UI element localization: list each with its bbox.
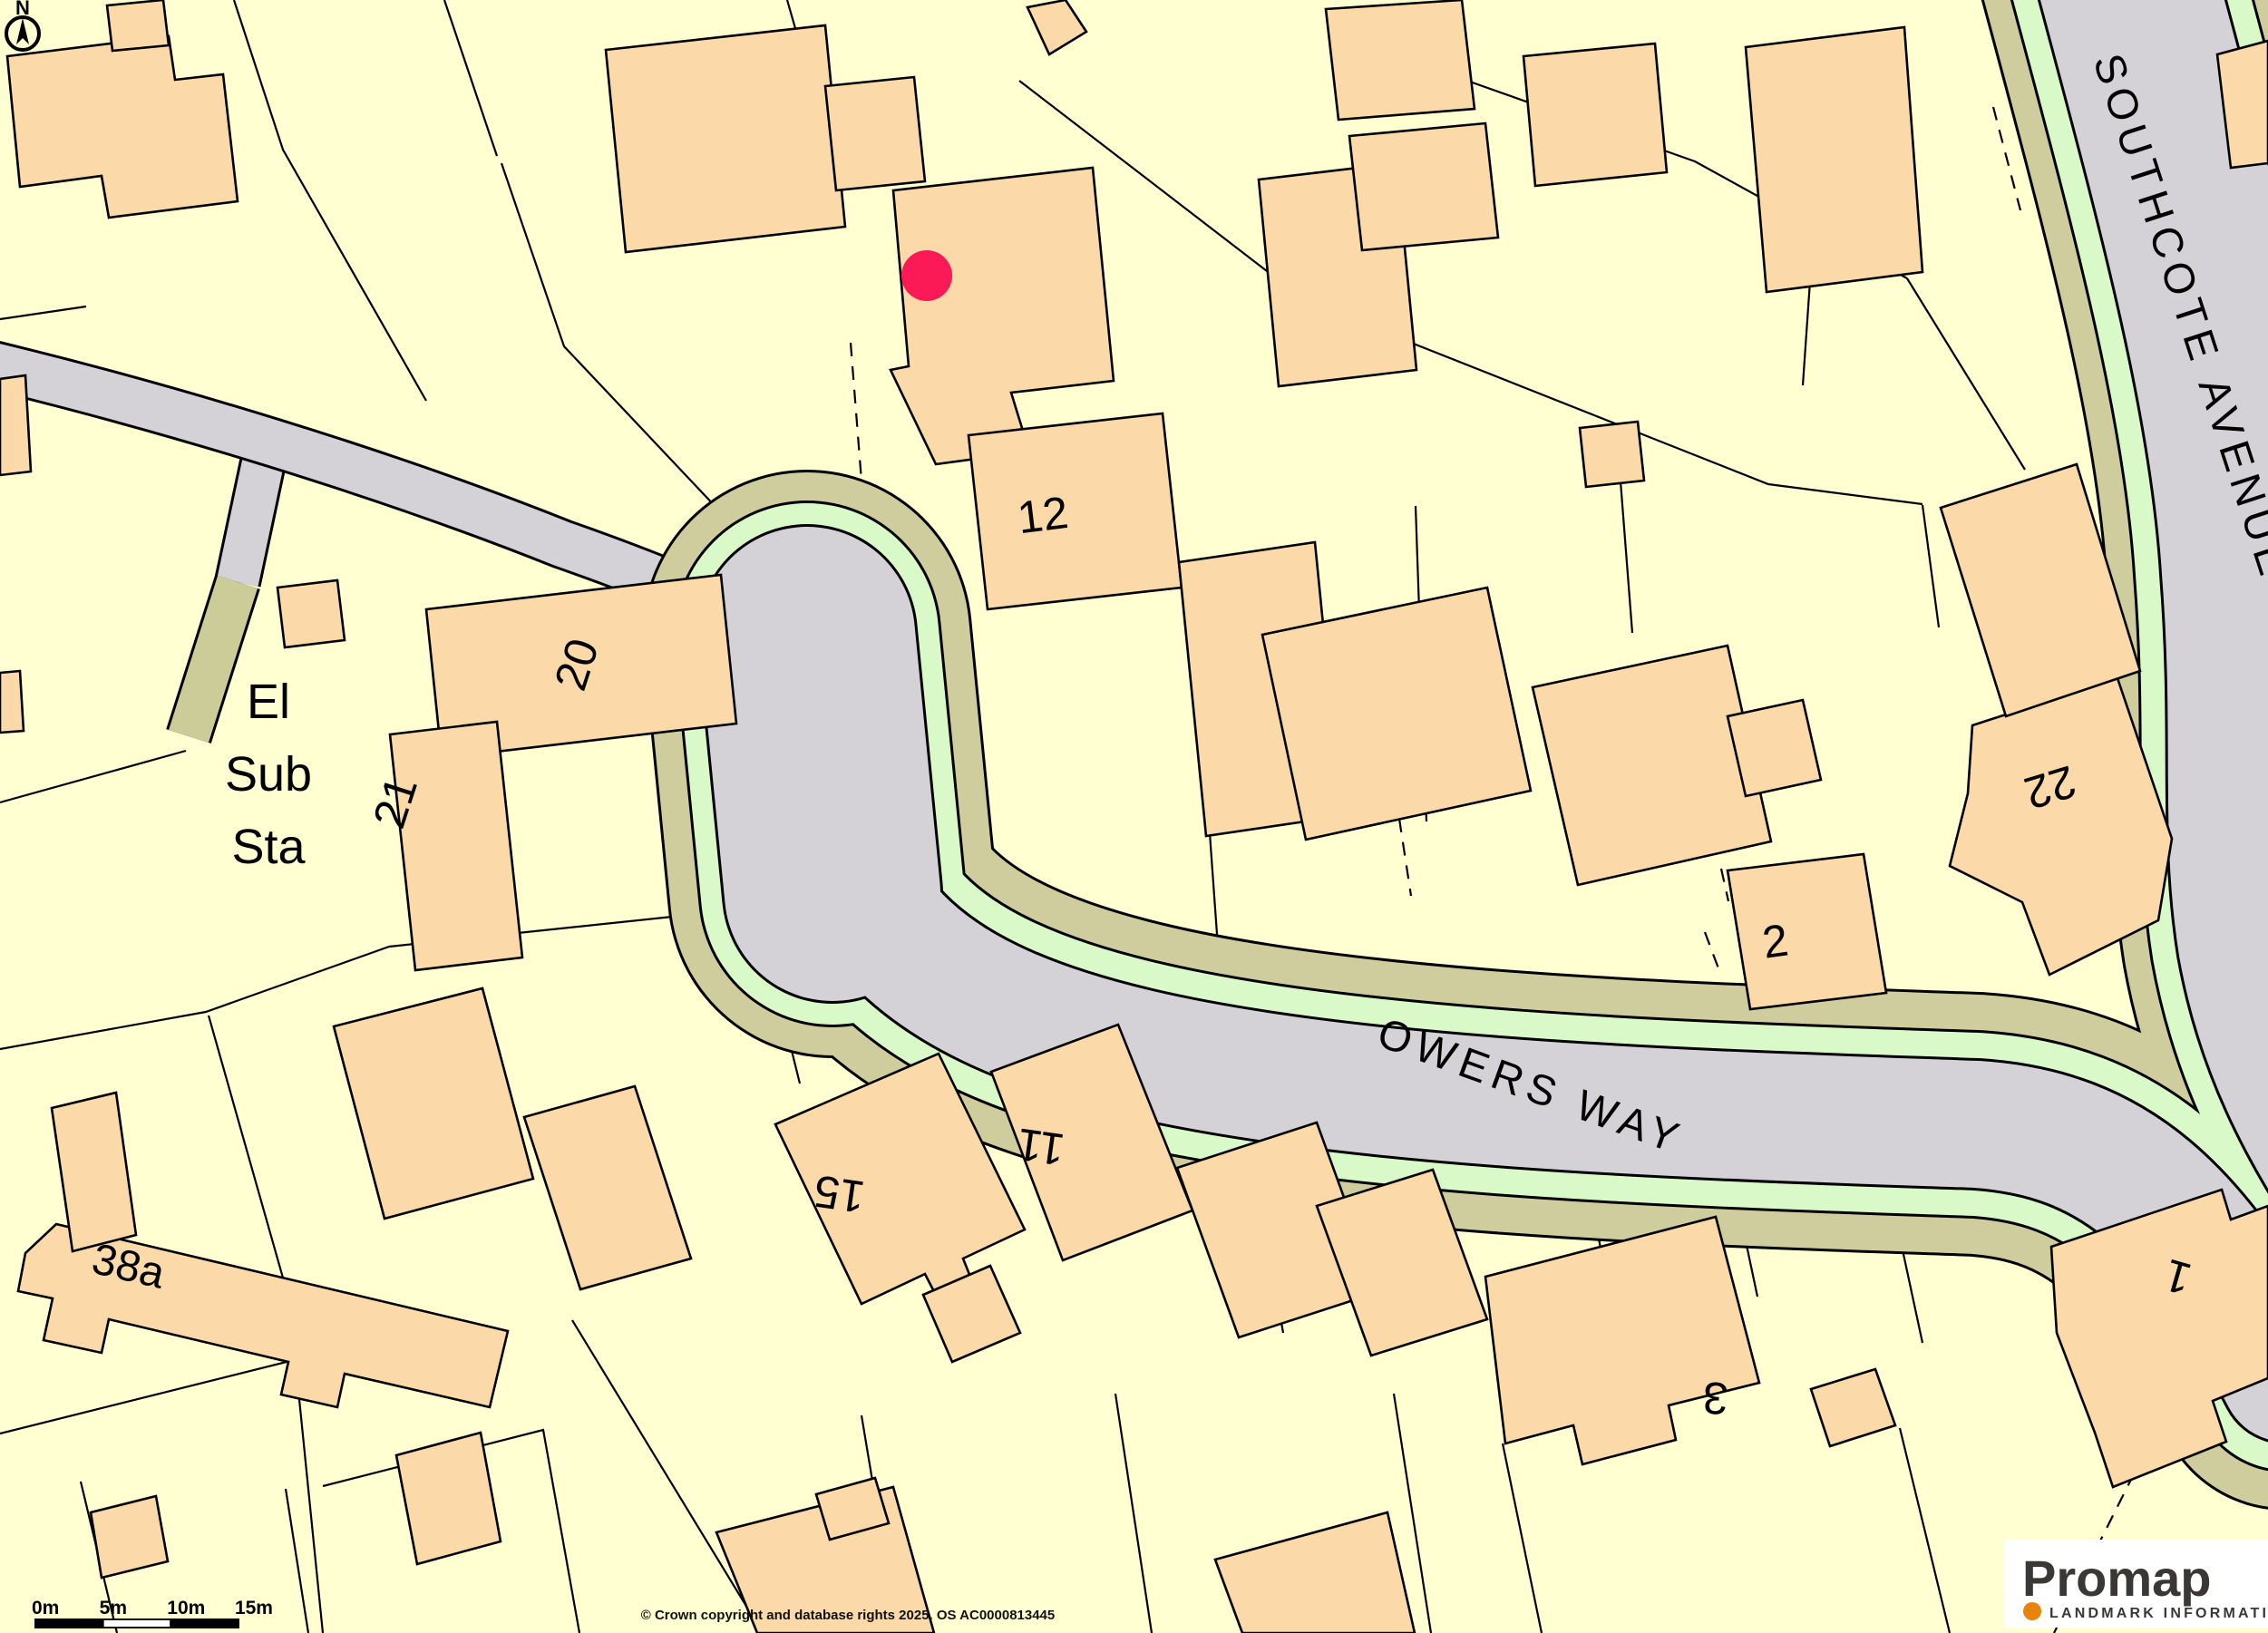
- building-footprint: [1523, 44, 1667, 186]
- building-footprint: [1580, 422, 1644, 487]
- svg-text:El: El: [247, 675, 290, 729]
- scale-tick-label: 0m: [32, 1598, 59, 1618]
- building-footprint: [606, 25, 845, 252]
- building-footprint: [0, 375, 31, 475]
- building-footprint: [825, 77, 925, 190]
- building-footprint: [1326, 0, 1475, 120]
- building-footprint: [1746, 27, 1922, 292]
- house-number-label: 11: [1014, 1118, 1067, 1175]
- building-footprint: [0, 671, 24, 733]
- building-footprint: [1349, 123, 1498, 250]
- building-footprint: [1728, 700, 1821, 796]
- property-marker[interactable]: [901, 250, 952, 301]
- promap-wordmark: Promap: [2022, 1550, 2212, 1607]
- building-footprint: [277, 580, 345, 647]
- scale-tick-label: 5m: [100, 1598, 127, 1618]
- logo-dot-icon: [2023, 1602, 2041, 1620]
- house-number-label: 15: [811, 1165, 868, 1222]
- promap-logo: PromapLANDMARK INFORMATION: [2004, 1540, 2268, 1628]
- copyright-attribution: © Crown copyright and database rights 20…: [641, 1608, 1056, 1623]
- building-footprint: [969, 413, 1182, 609]
- map-canvas[interactable]: 122021222111538a31ElSubStaSOUTHCOTE AVEN…: [0, 0, 2268, 1633]
- building-footprint: [1728, 854, 1886, 1009]
- building-footprint: [107, 0, 169, 51]
- scale-tick-label: 10m: [167, 1598, 205, 1618]
- logo-subtitle: LANDMARK INFORMATION: [2049, 1606, 2268, 1621]
- house-number-label: 3: [1701, 1372, 1730, 1424]
- svg-text:Sta: Sta: [231, 820, 306, 874]
- scale-tick-label: 15m: [235, 1598, 273, 1618]
- svg-text:Sub: Sub: [225, 747, 312, 802]
- house-number-label: 12: [1015, 487, 1071, 543]
- svg-text:N: N: [15, 0, 30, 19]
